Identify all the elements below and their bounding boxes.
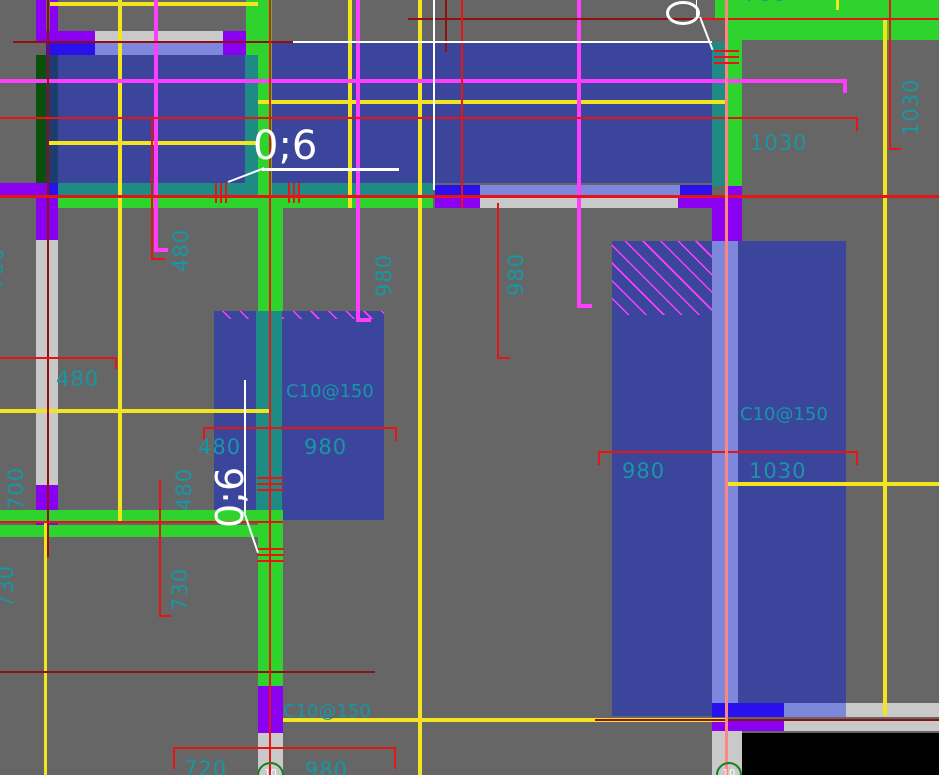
rebar-tick	[257, 483, 284, 485]
wall-strip-dark-green	[36, 55, 46, 183]
gridline-yellow-v	[44, 523, 47, 775]
dim-label: 730	[170, 568, 191, 611]
dim-label: 480	[56, 369, 99, 390]
rebar-tick	[293, 183, 295, 203]
callout-label: 0;6	[253, 126, 317, 166]
gridline-yellow-h	[49, 141, 257, 145]
dim-label: 720	[184, 759, 227, 775]
axis-magenta-v	[154, 0, 158, 252]
dim-line	[0, 357, 117, 359]
axis-magenta-foot	[577, 304, 592, 308]
rebar-tick	[257, 489, 284, 491]
line-dark-red-v	[445, 0, 447, 52]
gridline-yellow-v	[348, 0, 352, 208]
dim-line-v	[497, 203, 499, 359]
dim-line	[203, 427, 397, 429]
rebar-tick	[257, 548, 284, 550]
wall-segment	[738, 20, 939, 40]
rebar-tick	[220, 183, 222, 203]
rebar-tick	[298, 183, 300, 203]
void-region	[742, 733, 939, 775]
line-dark-red-h	[13, 41, 293, 43]
line-dark-red-h	[0, 671, 375, 673]
line-dark-red-v	[47, 0, 49, 557]
line-dark-red-h	[595, 719, 939, 721]
annotation-line-v	[696, 0, 697, 16]
cad-viewport[interactable]: 700 480 1030 1030 700 980 980 480 700 48…	[0, 0, 939, 775]
dim-label: 700	[744, 0, 787, 5]
dim-label: 480	[198, 437, 241, 458]
axis-magenta-foot	[154, 248, 168, 252]
wall-segment	[784, 720, 939, 731]
gridline-yellow-h	[0, 409, 270, 413]
slab-panel-top-mid	[272, 42, 713, 183]
dim-label: 980	[506, 253, 527, 296]
wall-segment	[727, 18, 742, 186]
annotation-line-v	[433, 0, 435, 190]
dim-tick	[173, 747, 175, 769]
rebar-tick	[257, 560, 284, 562]
dim-label: 980	[622, 461, 665, 482]
dim-tick	[598, 451, 600, 465]
dim-line	[0, 117, 858, 119]
rebar-tick	[288, 183, 290, 203]
wall-segment	[36, 0, 46, 43]
wall-segment	[223, 31, 246, 55]
dim-label: 730	[0, 565, 17, 608]
dim-label: 980	[374, 254, 395, 297]
line-red-v	[461, 0, 463, 208]
dim-foot	[889, 148, 901, 150]
line-dark-red-h	[408, 18, 700, 20]
dim-label: 700	[0, 247, 7, 290]
wall-segment	[46, 43, 95, 55]
rebar-tick	[225, 183, 227, 203]
dim-tick	[395, 427, 397, 441]
dim-label: 480	[174, 468, 195, 511]
line-red-h	[700, 18, 939, 20]
dim-label: 1030	[749, 461, 806, 482]
rebar-tick	[714, 50, 739, 52]
dim-line	[598, 451, 858, 453]
rebar-tick	[257, 554, 284, 556]
gridline-yellow-h	[258, 100, 727, 104]
gridline-yellow-v	[836, 0, 839, 10]
wall-segment	[95, 43, 223, 55]
dim-label: 980	[304, 437, 347, 458]
line-salmon-v	[725, 0, 728, 775]
rebar-tick	[257, 477, 284, 479]
dim-line-v	[151, 117, 153, 260]
dim-label: 480	[171, 229, 192, 272]
wall-segment	[784, 703, 846, 717]
dim-tick	[115, 357, 117, 369]
dim-label: 980	[305, 760, 348, 775]
rebar-label: C10@150	[740, 406, 828, 424]
annotation-line-h	[293, 41, 712, 43]
line-red-h	[0, 195, 939, 198]
axis-magenta-h	[0, 79, 847, 83]
dim-foot	[497, 357, 510, 359]
callout-label: 0;6	[211, 467, 249, 528]
dim-tick	[394, 747, 396, 769]
dim-line	[173, 747, 396, 749]
line-red-v	[269, 0, 271, 775]
rebar-label: C10@150	[283, 703, 371, 721]
dim-line-v	[889, 0, 891, 150]
axis-magenta-foot	[356, 318, 371, 322]
axis-magenta-v	[577, 0, 581, 308]
rebar-label: C10@150	[286, 383, 374, 401]
wall-segment	[712, 703, 784, 717]
dim-label: 1030	[750, 133, 807, 154]
dim-foot	[151, 258, 165, 260]
rebar-tick	[215, 183, 217, 203]
rebar-tick	[714, 62, 739, 64]
gridline-yellow-v	[883, 20, 887, 716]
hatch-region	[612, 241, 725, 315]
axis-magenta-v	[356, 0, 360, 322]
dim-foot	[159, 615, 171, 617]
dim-label: 700	[6, 467, 27, 510]
callout-ellipse-0	[666, 1, 700, 25]
dim-tick	[856, 451, 858, 465]
rebar-tick	[714, 56, 739, 58]
wall-segment	[846, 703, 939, 717]
dim-line-v	[159, 480, 161, 617]
axis-magenta-foot	[843, 79, 847, 93]
dim-label: 1030	[901, 79, 922, 136]
dim-tick	[856, 117, 858, 131]
